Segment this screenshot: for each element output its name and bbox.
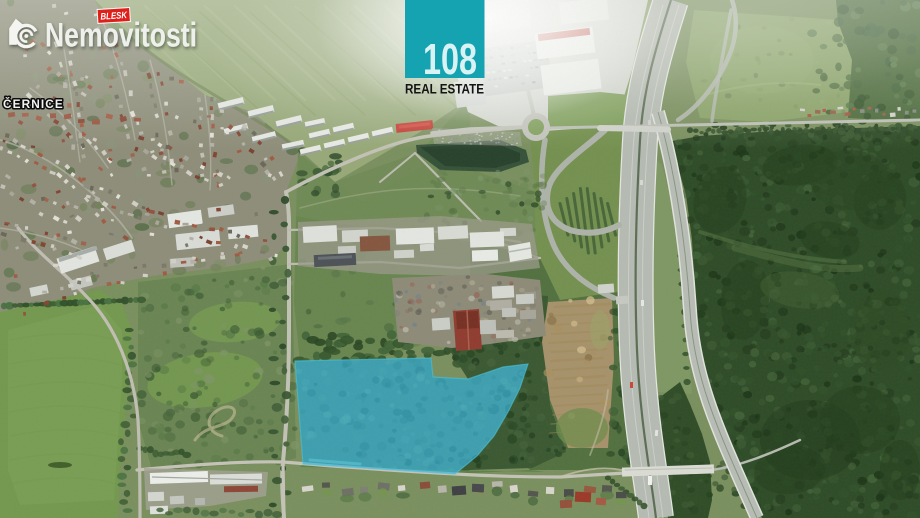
svg-text:REAL ESTATE: REAL ESTATE (405, 82, 484, 97)
svg-text:ČERNICE: ČERNICE (3, 97, 64, 111)
svg-text:BLESK: BLESK (100, 9, 128, 22)
svg-text:108: 108 (423, 35, 477, 84)
